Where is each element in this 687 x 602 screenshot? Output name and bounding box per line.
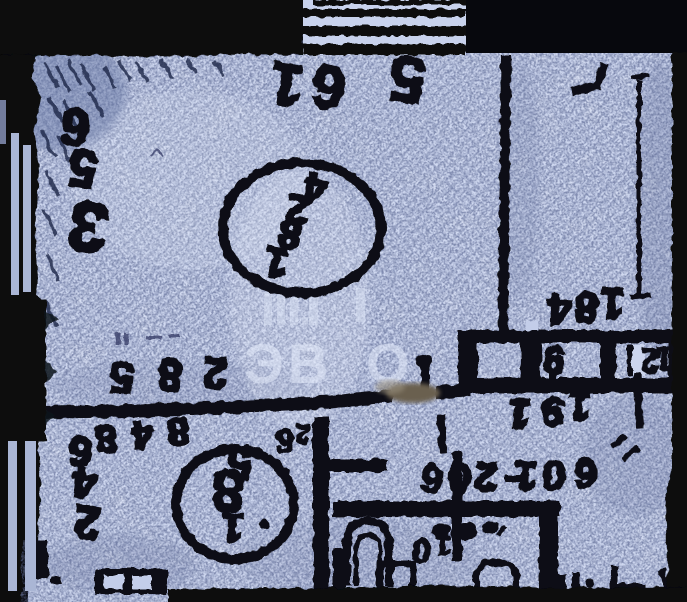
svg-text:6: 6 (274, 420, 296, 460)
svg-text:8: 8 (166, 409, 190, 452)
svg-text:4: 4 (546, 286, 572, 334)
svg-text:0: 0 (541, 451, 566, 496)
svg-text:2: 2 (473, 453, 498, 498)
svg-text:5: 5 (109, 352, 136, 402)
svg-text:8: 8 (157, 350, 184, 400)
svg-text:0: 0 (447, 454, 472, 499)
svg-text:6: 6 (419, 455, 444, 500)
svg-text:8: 8 (94, 416, 118, 459)
svg-text:1: 1 (513, 452, 538, 497)
svg-text:8: 8 (574, 284, 600, 332)
svg-text:1: 1 (507, 390, 533, 436)
svg-text:1: 1 (220, 504, 246, 550)
svg-text:2: 2 (202, 348, 229, 398)
svg-text:0: 0 (411, 530, 433, 570)
svg-text:1: 1 (567, 382, 593, 428)
svg-text:6: 6 (573, 450, 598, 495)
svg-text:2: 2 (294, 419, 311, 450)
svg-text:4: 4 (130, 413, 154, 456)
svg-text:ЭВ: ЭВ (244, 332, 332, 395)
svg-text:9: 9 (540, 388, 566, 434)
svg-text:1: 1 (600, 280, 626, 328)
